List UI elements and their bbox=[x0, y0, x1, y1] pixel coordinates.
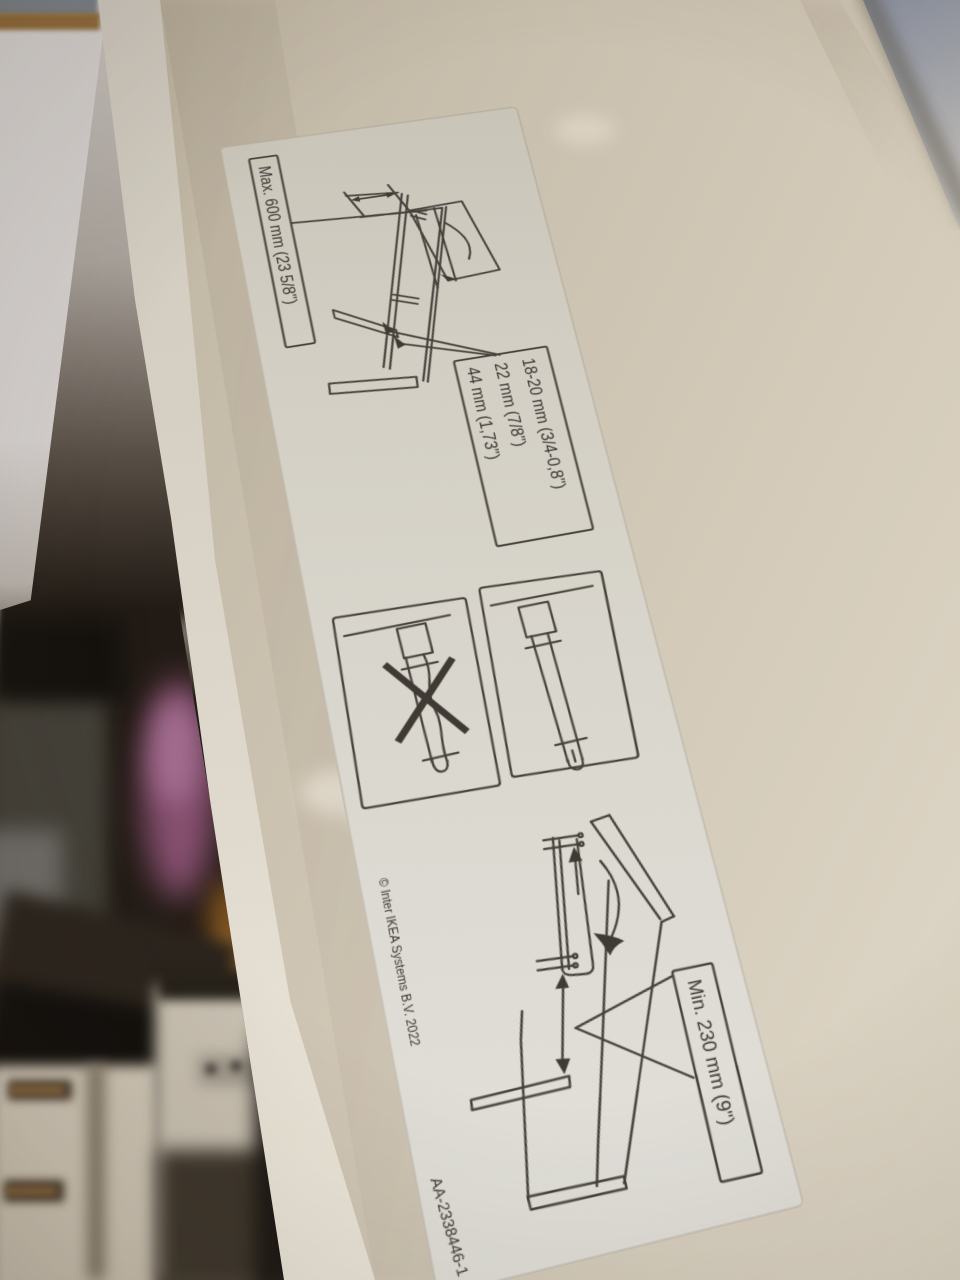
svg-text:18-20 mm (3/4-0,8"): 18-20 mm (3/4-0,8") bbox=[517, 357, 568, 491]
svg-text:AA-2338446-1: AA-2338446-1 bbox=[426, 1176, 470, 1279]
